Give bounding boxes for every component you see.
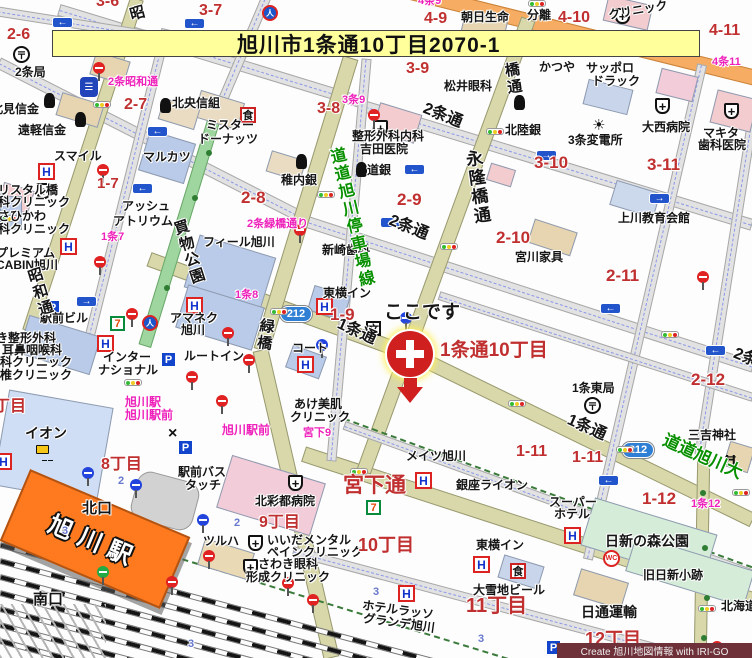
map-label: あけ美肌 — [294, 398, 342, 411]
sign-bar — [199, 519, 207, 521]
map-label: 大西病院 — [642, 121, 690, 134]
signal-lamp — [95, 103, 99, 107]
pedestrian-crossing-icon: 人 — [142, 315, 158, 331]
sign-bar — [168, 581, 176, 583]
post-office-icon: 〒 — [584, 397, 601, 414]
signal-lamp — [357, 470, 361, 474]
no-parking-sign-icon — [368, 109, 380, 121]
signal-lamp — [739, 491, 743, 495]
traffic-signal-icon — [616, 446, 634, 453]
bank-icon — [160, 98, 171, 113]
hotel-icon: H — [415, 472, 432, 489]
one-way-arrow-icon: ← — [600, 303, 621, 314]
bank-icon — [75, 112, 86, 127]
sign-bar — [99, 571, 107, 573]
no-parking-sign-icon — [307, 594, 319, 606]
traffic-signal-icon — [698, 605, 716, 612]
map-label: 北央信組 — [172, 97, 220, 110]
no-parking-sign-icon — [82, 467, 94, 479]
map-label: ドーナッツ — [198, 133, 258, 146]
hospital-icon: + — [248, 535, 263, 551]
power-station-icon: ☀ — [592, 116, 605, 134]
sign-bar — [188, 376, 196, 378]
map-label: 2-6 — [7, 27, 30, 44]
map-label: 旭川駅前 — [125, 409, 173, 422]
parking-icon: P — [161, 352, 176, 367]
map-label: 昭 — [128, 4, 147, 23]
map-label: 9丁目 — [259, 515, 300, 532]
sign-post — [312, 605, 314, 613]
map-label: 旭川 — [181, 324, 205, 337]
sign-bar — [218, 400, 226, 402]
sign-post — [227, 338, 229, 346]
map-label: さひかわ — [0, 210, 46, 223]
map-canvas[interactable]: 旭川駅 ここです 1条通10丁目 旭川市1条通10丁目2070-1 Create… — [0, 0, 752, 658]
map-label: 北口 — [82, 501, 112, 517]
map-label: 1条12 — [691, 499, 720, 511]
map-label: サッポロ — [586, 62, 634, 75]
one-way-arrow-icon: ← — [147, 126, 168, 137]
map-label: 宮川家具 — [515, 251, 563, 264]
sign-bar — [205, 555, 213, 557]
sign-bar — [309, 599, 317, 601]
signal-lamp — [710, 607, 714, 611]
map-label: 北陸銀 — [505, 124, 541, 137]
building — [486, 163, 516, 188]
map-label: ドラック — [592, 75, 640, 88]
map-label: 旭川駅前 — [222, 424, 270, 437]
sign-bar — [132, 484, 140, 486]
sign-post — [98, 73, 100, 81]
no-parking-sign-icon — [197, 514, 209, 526]
signal-lamp — [352, 470, 356, 474]
traffic-signal-icon — [732, 489, 750, 496]
signal-lamp — [510, 402, 514, 406]
no-parking-sign-icon — [166, 576, 178, 588]
map-label: 丁目 — [0, 399, 26, 416]
here-label: ここです — [384, 303, 460, 323]
map-label: かつや — [539, 61, 575, 74]
map-label: メイツ旭川 — [406, 450, 466, 463]
sign-post — [287, 588, 289, 596]
map-label: 2-11 — [606, 267, 639, 285]
traffic-signal-icon — [124, 379, 142, 386]
sign-post — [99, 267, 101, 275]
map-label: 北海道 — [721, 600, 752, 613]
signal-lamp — [100, 103, 104, 107]
hospital-icon: + — [724, 103, 739, 119]
one-way-arrow-icon: ← — [598, 475, 619, 486]
map-label: 松井眼科 — [444, 80, 492, 93]
one-way-arrow-icon: ← — [52, 17, 73, 28]
map-label: コート — [292, 342, 328, 355]
map-label: 2 — [234, 518, 240, 530]
sign-post — [221, 406, 223, 414]
map-label: 3-8 — [317, 101, 340, 118]
map-label: 2-8 — [241, 189, 266, 207]
map-label: 道銀 — [367, 164, 391, 177]
parking-icon: P — [178, 440, 193, 455]
map-label: 3 — [478, 634, 484, 646]
map-label: 朝日生命 — [461, 11, 509, 24]
map-label: 科クリニック — [0, 223, 70, 236]
map-label: 1-9 — [330, 306, 355, 324]
map-label: ホテル — [554, 508, 590, 521]
hotel-icon: H — [398, 585, 415, 602]
map-label: スマイル — [54, 150, 102, 163]
map-label: 1-11 — [516, 444, 547, 461]
map-label: 整形外科内科 — [352, 130, 424, 143]
one-way-arrow-icon: ← — [132, 183, 153, 194]
map-label: タッチ — [185, 479, 221, 492]
sign-bar — [84, 472, 92, 474]
map-label: 旧日新小跡 — [643, 569, 703, 582]
location-marker — [387, 331, 433, 377]
map-label: 1-12 — [642, 490, 676, 508]
sign-post — [135, 490, 137, 498]
signal-lamp — [488, 130, 492, 134]
tree-icon — [702, 545, 708, 551]
map-label: ナショナル — [98, 364, 158, 377]
signal-lamp — [282, 310, 286, 314]
tree-icon — [704, 595, 710, 601]
sign-post — [373, 120, 375, 128]
traffic-signal-icon — [508, 400, 526, 407]
signal-lamp — [319, 193, 323, 197]
sign-bar — [96, 261, 104, 263]
map-label: 吉田医院 — [360, 143, 408, 156]
no-parking-sign-icon — [697, 271, 709, 283]
closed-mark-icon: × — [168, 425, 177, 443]
map-label: 3 — [62, 526, 68, 538]
hospital-icon: + — [288, 475, 303, 491]
map-label: 旭川駅 — [125, 396, 161, 409]
sign-post — [171, 587, 173, 595]
hospital-icon: + — [655, 98, 670, 114]
chome-boundary-dash — [699, 120, 752, 454]
map-label: フィール旭川 — [203, 236, 275, 249]
map-label: 科クリニック — [0, 356, 72, 369]
restaurant-icon: 食 — [510, 563, 526, 579]
traffic-signal-icon — [93, 101, 111, 108]
signal-lamp — [530, 2, 534, 6]
signal-lamp — [535, 2, 539, 6]
no-parking-sign-icon — [126, 308, 138, 320]
map-label: 4条9 — [418, 0, 441, 8]
map-label: 2-7 — [124, 97, 147, 114]
toilet-icon: WC — [603, 550, 620, 567]
signal-lamp — [628, 448, 632, 452]
map-label: 2-12 — [691, 371, 725, 389]
signal-lamp — [324, 193, 328, 197]
map-label: 3 — [188, 639, 194, 651]
convenience-store-icon: 7 — [110, 316, 125, 331]
signal-lamp — [136, 381, 140, 385]
convenience-store-icon: 7 — [366, 500, 381, 515]
map-label: 緑橋 — [254, 317, 274, 353]
map-label: 駅前バス — [178, 466, 226, 479]
map-label: 10丁目 — [358, 536, 414, 555]
shopping-cart-icon — [36, 445, 49, 454]
map-label: 歯科医院 — [698, 139, 746, 152]
map-label: インター — [103, 351, 151, 364]
signal-lamp — [520, 402, 524, 406]
map-label: イオン — [25, 426, 67, 441]
map-label: 宮下通 — [343, 475, 406, 497]
one-way-arrow-icon: → — [649, 193, 670, 204]
signal-lamp — [126, 381, 130, 385]
one-way-arrow-icon: ← — [404, 164, 425, 175]
sign-post — [299, 235, 301, 243]
map-label: 分離 — [527, 9, 551, 22]
map-label: ミスター — [206, 119, 254, 132]
map-label: 遠軽信金 — [18, 124, 66, 137]
no-parking-sign-icon — [243, 354, 255, 366]
traffic-signal-icon — [440, 243, 458, 250]
signal-lamp — [362, 470, 366, 474]
map-label: 3-6 — [96, 0, 119, 11]
sign-bar — [224, 332, 232, 334]
hotel-icon: H — [0, 453, 12, 470]
map-label: 日通運輸 — [581, 605, 637, 620]
hotel-icon: H — [297, 356, 314, 373]
one-way-arrow-icon: ← — [705, 345, 726, 356]
tree-icon — [701, 635, 707, 641]
sign-post — [202, 525, 204, 533]
no-parking-sign-icon — [222, 327, 234, 339]
map-label: 3条変電所 — [568, 134, 623, 147]
signal-lamp — [329, 193, 333, 197]
sign-post — [102, 577, 104, 585]
map-label: 1条東局 — [572, 382, 615, 395]
no-parking-sign-icon — [203, 550, 215, 562]
sign-post — [208, 561, 210, 569]
traffic-signal-icon — [270, 308, 288, 315]
signal-lamp — [668, 333, 672, 337]
no-parking-sign-icon — [93, 62, 105, 74]
traffic-signal-icon — [486, 128, 504, 135]
address-banner: 旭川市1条通10丁目2070-1 — [52, 30, 700, 57]
sign-post — [131, 319, 133, 327]
map-label: 上川教育会館 — [618, 212, 690, 225]
map-label: 科クリニック — [0, 196, 70, 209]
map-label: 4-11 — [709, 23, 740, 40]
signal-lamp — [618, 448, 622, 452]
map-label: 三吉神社 — [688, 429, 736, 442]
signal-lamp — [131, 381, 135, 385]
map-label: 日新の森公園 — [605, 534, 689, 549]
map-label: 3-7 — [199, 3, 222, 20]
map-label: 3-11 — [647, 156, 680, 174]
signal-lamp — [272, 310, 276, 314]
map-label: さわき眼科 — [258, 558, 318, 571]
signal-lamp — [277, 310, 281, 314]
signal-lamp — [498, 130, 502, 134]
map-label: 東横イン — [323, 287, 371, 300]
bank-icon — [356, 162, 367, 177]
no-parking-sign-icon — [186, 371, 198, 383]
map-label: 2-10 — [496, 229, 530, 247]
sign-bar — [699, 276, 707, 278]
map-label: 椎クリニック — [0, 369, 72, 382]
map-label: 2条通 — [386, 213, 430, 244]
signal-lamp — [734, 491, 738, 495]
tree-icon — [192, 195, 198, 201]
map-label: 2-9 — [397, 191, 422, 209]
signal-lamp — [700, 607, 704, 611]
tree-icon — [700, 490, 706, 496]
sign-post — [248, 365, 250, 373]
signal-lamp — [442, 245, 446, 249]
marker-arrow — [397, 387, 423, 403]
map-label: 1条7 — [101, 232, 124, 244]
map-label: 北彩都病院 — [255, 495, 315, 508]
map-label: 1条8 — [235, 290, 258, 302]
pedestrian-bridge-icon: ☰ — [80, 77, 98, 97]
signal-lamp — [673, 333, 677, 337]
signal-lamp — [493, 130, 497, 134]
sign-bar — [99, 169, 107, 171]
no-parking-sign-icon — [94, 256, 106, 268]
traffic-signal-icon — [317, 191, 335, 198]
signal-lamp — [663, 333, 667, 337]
no-parking-sign-icon — [97, 566, 109, 578]
map-label: 3-10 — [534, 154, 568, 172]
map-label: 3-9 — [406, 61, 429, 78]
bank-icon — [514, 95, 525, 110]
map-label: 4条11 — [712, 57, 741, 69]
hotel-icon: H — [473, 556, 490, 573]
map-label: 橋通 — [502, 61, 522, 97]
no-parking-sign-icon — [130, 479, 142, 491]
hotel-icon: H — [60, 238, 77, 255]
map-label: 北見信金 — [0, 103, 39, 116]
signal-lamp — [447, 245, 451, 249]
map-label: 11丁目 — [466, 596, 527, 617]
map-label: 4-10 — [558, 10, 590, 27]
signal-lamp — [623, 448, 627, 452]
traffic-signal-icon — [661, 331, 679, 338]
map-label: 稚内銀 — [281, 174, 317, 187]
tree-icon — [206, 150, 212, 156]
signal-lamp — [540, 2, 544, 6]
map-label: 2条緑橋通り — [247, 219, 308, 231]
map-label: 3 — [373, 587, 379, 599]
map-label: 銀座ライオン — [456, 479, 528, 492]
hotel-icon: H — [564, 527, 581, 544]
sign-bar — [128, 313, 136, 315]
map-label: アッシュ — [122, 200, 170, 213]
signal-lamp — [452, 245, 456, 249]
marker-cross — [406, 340, 414, 368]
map-label: マルカツ — [143, 151, 191, 164]
map-label: 3条9 — [342, 95, 365, 107]
sign-post — [405, 323, 407, 331]
sign-bar — [370, 114, 378, 116]
map-label: 永隆橋通 — [462, 149, 490, 227]
one-way-arrow-icon: → — [76, 296, 97, 307]
signal-lamp — [515, 402, 519, 406]
sign-post — [191, 382, 193, 390]
hatched-area — [0, 604, 106, 658]
map-label: 東横イン — [476, 539, 524, 552]
no-parking-sign-icon — [216, 395, 228, 407]
hotel-icon: H — [38, 163, 55, 180]
map-label: 宮下9 — [303, 428, 331, 440]
marker-address-label: 1条通10丁目 — [440, 341, 548, 361]
pedestrian-crossing-icon: 人 — [262, 5, 278, 21]
signal-lamp — [105, 103, 109, 107]
map-label: ツルハ — [203, 535, 239, 548]
map-label: 4-9 — [424, 11, 447, 28]
map-label: 2条局 — [15, 66, 46, 79]
map-label: クリニック — [290, 411, 350, 424]
sign-post — [702, 282, 704, 290]
bank-icon — [44, 93, 55, 108]
map-label: 2 — [118, 476, 124, 488]
signal-lamp — [705, 607, 709, 611]
traffic-signal-icon — [528, 0, 546, 7]
sign-bar — [95, 67, 103, 69]
map-label: 8丁目 — [101, 457, 142, 474]
map-attribution: Create 旭川地図情報 with IRI-GO — [557, 643, 752, 658]
map-label: 1-7 — [97, 176, 119, 192]
map-label: 形成クリニック — [246, 571, 330, 584]
map-label: 2条昭和通 — [108, 77, 158, 89]
map-label: ルートイン — [184, 350, 244, 363]
map-label: 1-11 — [572, 450, 603, 467]
bank-icon — [296, 154, 307, 169]
signal-lamp — [744, 491, 748, 495]
sign-post — [87, 478, 89, 486]
post-office-icon: 〒 — [13, 46, 30, 63]
sign-bar — [245, 359, 253, 361]
address-banner-title: 旭川市1条通10丁目2070-1 — [237, 29, 500, 59]
tree-icon — [164, 285, 170, 291]
map-label: 南口 — [33, 592, 63, 608]
map-label: アトリウム — [113, 215, 173, 228]
